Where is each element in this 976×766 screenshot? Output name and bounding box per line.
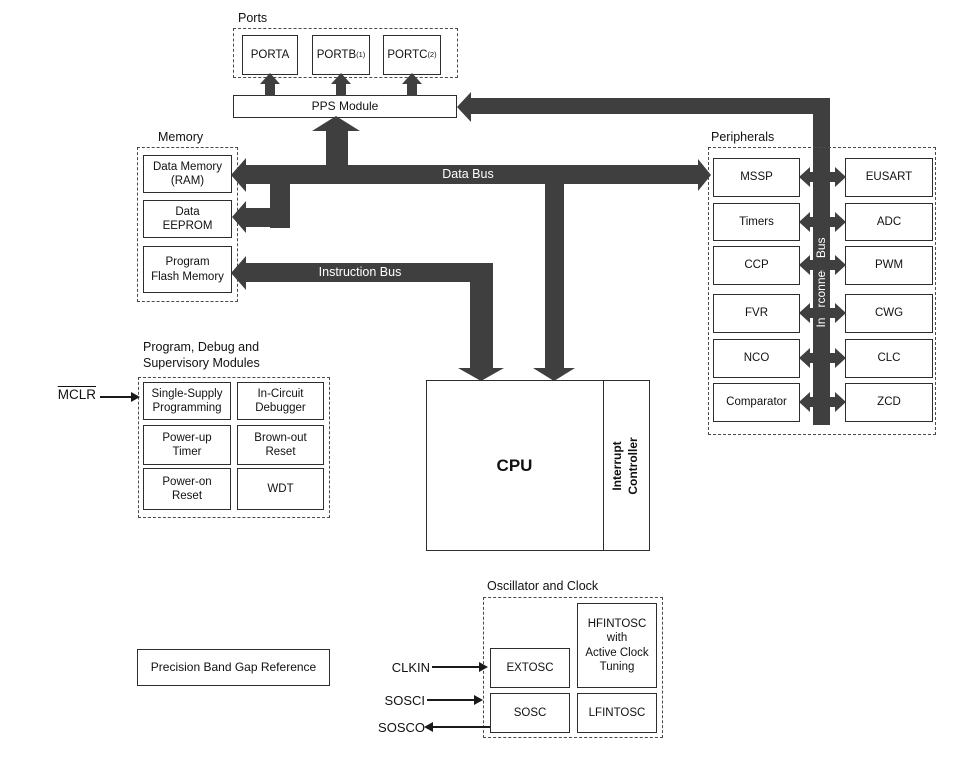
interconnect-arrow: [808, 308, 837, 318]
in-circuit-debugger-box: In-Circuit Debugger: [237, 382, 324, 420]
interconnect-arrowhead-left: [799, 167, 810, 187]
portc-label: PORTC: [387, 48, 427, 62]
nco-box: NCO: [713, 339, 800, 378]
cpu-label: CPU: [426, 380, 603, 551]
sosco-line: [433, 726, 490, 728]
interconnect-arrow: [808, 260, 837, 270]
power-up-timer-box: Power-up Timer: [143, 425, 231, 465]
interconnect-arrow: [808, 172, 837, 182]
sosci-pin-label: SOSCI: [377, 693, 425, 708]
sosci-line: [427, 699, 474, 701]
clc-box: CLC: [845, 339, 933, 378]
pps-module-box: PPS Module: [233, 95, 457, 118]
mssp-box: MSSP: [713, 158, 800, 197]
interconnect-arrowhead-left: [799, 348, 810, 368]
interconnect-arrowhead-right: [835, 255, 846, 275]
instruction-bus-label: Instruction Bus: [298, 264, 422, 281]
data-memory-ram-box: Data Memory (RAM): [143, 155, 232, 193]
interconnect-arrow: [808, 353, 837, 363]
interconnect-arrowhead-right: [835, 212, 846, 232]
mclr-arrowhead: [131, 392, 140, 402]
pps-to-portb-arrowhead: [331, 73, 351, 84]
extosc-box: EXTOSC: [490, 648, 570, 688]
adc-box: ADC: [845, 203, 933, 241]
data-bus-label: Data Bus: [430, 166, 506, 183]
portb-box: PORTB(1): [312, 35, 370, 75]
cpu-interrupt-divider: [603, 380, 604, 551]
portc-box: PORTC(2): [383, 35, 441, 75]
databus-to-eeprom-arrowhead: [232, 201, 246, 233]
interconnect-arrowhead-right: [835, 392, 846, 412]
block-diagram: Ports PORTA PORTB(1) PORTC(2) PPS Module…: [0, 0, 976, 766]
lfintosc-box: LFINTOSC: [577, 693, 657, 733]
interconnect-arrow: [808, 217, 837, 227]
pps-to-porta-arrowhead: [260, 73, 280, 84]
ports-section-label: Ports: [238, 11, 267, 27]
pps-to-portb-arrow: [336, 84, 346, 96]
sosco-pin-label: SOSCO: [369, 720, 425, 735]
band-gap-reference-box: Precision Band Gap Reference: [137, 649, 330, 686]
hfintosc-box: HFINTOSC with Active Clock Tuning: [577, 603, 657, 688]
memory-section-label: Memory: [158, 130, 203, 146]
cwg-box: CWG: [845, 294, 933, 333]
sosc-box: SOSC: [490, 693, 570, 733]
sosci-arrowhead: [474, 695, 483, 705]
pps-module-label: PPS Module: [312, 99, 379, 114]
pps-feed-bus: [471, 98, 830, 114]
zcd-box: ZCD: [845, 383, 933, 422]
interconnect-arrowhead-left: [799, 392, 810, 412]
mclr-text: MCLR: [58, 387, 96, 402]
clkin-line: [432, 666, 479, 668]
instruction-bus-arrowhead: [231, 256, 246, 290]
interconnect-arrowhead-right: [835, 348, 846, 368]
databus-to-pps-arrowhead: [312, 116, 360, 131]
eusart-box: EUSART: [845, 158, 933, 197]
pps-to-porta-arrow: [265, 84, 275, 96]
ccp-box: CCP: [713, 246, 800, 285]
interrupt-controller-label: Interrupt Controller: [609, 411, 645, 521]
pps-feed-arrowhead: [457, 92, 471, 122]
clkin-pin-label: CLKIN: [383, 660, 430, 675]
pps-to-portc-arrow: [407, 84, 417, 96]
databus-to-pps-arrow: [326, 131, 348, 166]
program-flash-memory-box: Program Flash Memory: [143, 246, 232, 293]
data-eeprom-box: Data EEPROM: [143, 200, 232, 238]
databus-to-cpu-arrow: [545, 184, 564, 368]
comparator-box: Comparator: [713, 383, 800, 422]
brown-out-reset-box: Brown-out Reset: [237, 425, 324, 465]
data-bus-left-arrowhead: [231, 158, 246, 192]
wdt-box: WDT: [237, 468, 324, 510]
pps-to-portc-arrowhead: [402, 73, 422, 84]
peripherals-section-label: Peripherals: [711, 130, 774, 146]
clkin-arrowhead: [479, 662, 488, 672]
porta-label: PORTA: [251, 48, 290, 62]
interconnect-arrowhead-left: [799, 303, 810, 323]
fvr-box: FVR: [713, 294, 800, 333]
single-supply-programming-box: Single-Supply Programming: [143, 382, 231, 420]
interconnect-arrow: [808, 397, 837, 407]
oscillator-section-label: Oscillator and Clock: [487, 579, 598, 595]
mclr-line: [100, 396, 131, 398]
timers-box: Timers: [713, 203, 800, 241]
databus-to-eeprom-horizontal: [246, 208, 290, 227]
instruction-bus-vertical: [470, 282, 493, 368]
interconnect-arrowhead-left: [799, 212, 810, 232]
interconnect-arrowhead-right: [835, 303, 846, 323]
portb-label: PORTB: [317, 48, 356, 62]
pwm-box: PWM: [845, 246, 933, 285]
interconnect-arrowhead-right: [835, 167, 846, 187]
sosco-arrowhead: [424, 722, 433, 732]
porta-box: PORTA: [242, 35, 298, 75]
debug-section-label: Program, Debug and Supervisory Modules: [143, 340, 260, 371]
power-on-reset-box: Power-on Reset: [143, 468, 231, 510]
interconnect-arrowhead-left: [799, 255, 810, 275]
mclr-pin-label: MCLR: [44, 387, 96, 402]
